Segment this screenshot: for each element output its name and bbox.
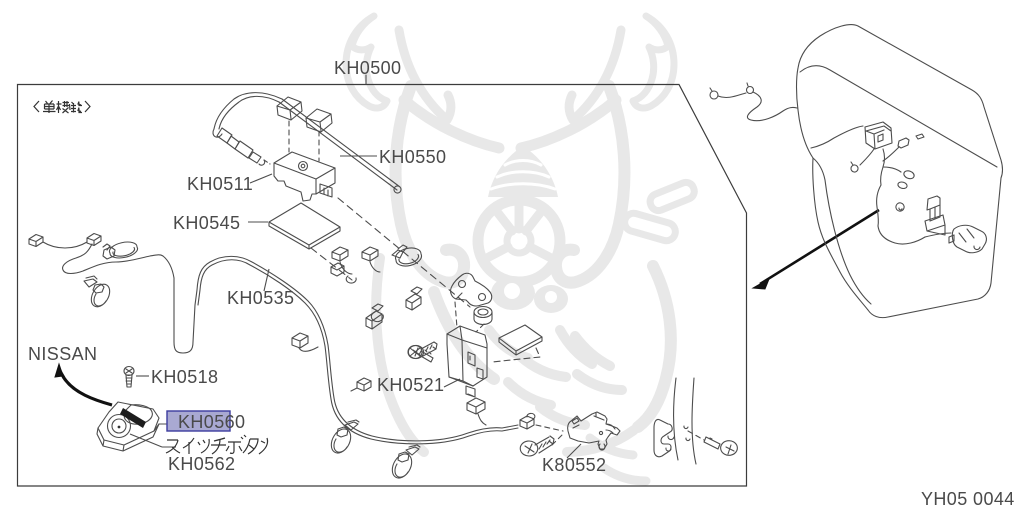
svg-text:KH0562: KH0562 bbox=[168, 454, 235, 474]
svg-text:NISSAN: NISSAN bbox=[28, 344, 97, 364]
svg-text:K80552: K80552 bbox=[542, 455, 606, 475]
svg-text:KH0545: KH0545 bbox=[173, 213, 240, 233]
svg-text:KH0550: KH0550 bbox=[379, 147, 446, 167]
svg-text:KH0521: KH0521 bbox=[377, 375, 444, 395]
svg-text:KH0535: KH0535 bbox=[227, 288, 294, 308]
svg-text:KH0511: KH0511 bbox=[187, 174, 253, 194]
svg-text:KH0518: KH0518 bbox=[151, 367, 218, 387]
svg-text:KH0500: KH0500 bbox=[334, 58, 401, 78]
svg-text:KH0560: KH0560 bbox=[178, 412, 245, 432]
svg-text:YH05 0044: YH05 0044 bbox=[921, 489, 1015, 506]
